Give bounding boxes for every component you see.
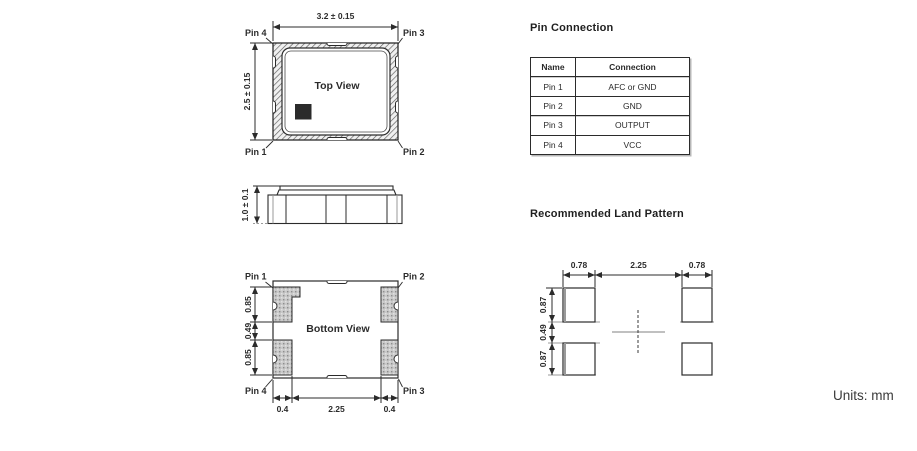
top-view-pin4-label: Pin 4 [245,28,267,38]
land-pattern-top-dimensions [563,270,712,287]
top-view-pin1-label: Pin 1 [245,147,267,157]
pin-name-cell: Pin 1 [531,77,576,96]
top-view-pin3-label: Pin 3 [403,28,425,38]
land-pad-bottom-left [563,343,595,375]
pin-name-cell: Pin 3 [531,116,576,135]
bottom-view-label: Bottom View [306,323,370,335]
land-pad-bottom-right [682,343,712,375]
top-view-pin2-label: Pin 2 [403,147,425,157]
pin-name-cell: Pin 4 [531,135,576,154]
land-pattern-diagram: 0.78 2.25 0.78 [530,248,730,388]
land-pad-top-left [563,288,595,322]
bottom-view-pin4-label: Pin 4 [245,386,267,396]
land-pattern-top-dim-2: 0.78 [689,260,706,270]
top-view-label: Top View [314,80,360,92]
bottom-view-diagram: Bottom View 0.85 0.49 0.85 0.4 2.25 0.4 [235,263,435,415]
top-view-width-dimension [273,21,398,41]
bottom-view-bottom-dim-1: 2.25 [328,404,345,414]
top-view-height-dimension [250,43,272,140]
center-crosshair [612,310,665,353]
bottom-view-left-dim-2: 0.85 [243,349,253,366]
land-pad-top-right [682,288,712,322]
pin-connection-table: Name Connection Pin 1 AFC or GND Pin 2 G… [530,57,690,155]
datasheet-page: 3.2 ± 0.15 2.5 ± 0.15 Top View [0,0,917,451]
land-pattern-left-dim-0: 0.87 [538,296,548,313]
land-pattern-left-dim-2: 0.87 [538,350,548,367]
table-header-row: Name Connection [531,58,690,77]
bottom-view-bottom-dimensions [273,376,398,403]
header-name: Name [531,58,576,77]
bottom-view-bottom-dim-2: 0.4 [384,404,396,414]
side-view-diagram: 1.0 ± 0.1 [233,180,413,232]
bottom-view-left-dim-0: 0.85 [243,296,253,313]
side-view-height-dim-label: 1.0 ± 0.1 [240,188,250,221]
pin-connection-cell: GND [576,96,690,115]
table-row: Pin 1 AFC or GND [531,77,690,96]
side-view-package-profile [268,186,402,224]
bottom-view-pin3-label: Pin 3 [403,386,425,396]
table-row: Pin 3 OUTPUT [531,116,690,135]
pin-name-cell: Pin 2 [531,96,576,115]
bottom-view-bottom-dim-0: 0.4 [277,404,289,414]
bottom-view-pin1-label: Pin 1 [245,272,267,282]
top-view-width-dim-label: 3.2 ± 0.15 [317,11,355,21]
table-row: Pin 4 VCC [531,135,690,154]
land-pattern-top-dim-1: 2.25 [630,260,647,270]
bottom-view-left-dimensions [250,287,272,375]
pin-connection-title: Pin Connection [530,22,613,34]
units-label: Units: mm [833,388,894,403]
land-pattern-top-dim-0: 0.78 [571,260,588,270]
land-pattern-left-dimensions [546,288,562,375]
header-connection: Connection [576,58,690,77]
bottom-view-pin2-label: Pin 2 [403,272,425,282]
top-view-height-dim-label: 2.5 ± 0.15 [242,72,252,110]
land-pattern-title: Recommended Land Pattern [530,208,684,220]
top-view-diagram: 3.2 ± 0.15 2.5 ± 0.15 Top View [235,5,435,165]
pin-connection-cell: OUTPUT [576,116,690,135]
bottom-view-left-dim-1: 0.49 [243,322,253,339]
pin-connection-cell: VCC [576,135,690,154]
table-row: Pin 2 GND [531,96,690,115]
land-pattern-left-dim-1: 0.49 [538,324,548,341]
pin1-index-marker [295,104,312,120]
pin-connection-cell: AFC or GND [576,77,690,96]
